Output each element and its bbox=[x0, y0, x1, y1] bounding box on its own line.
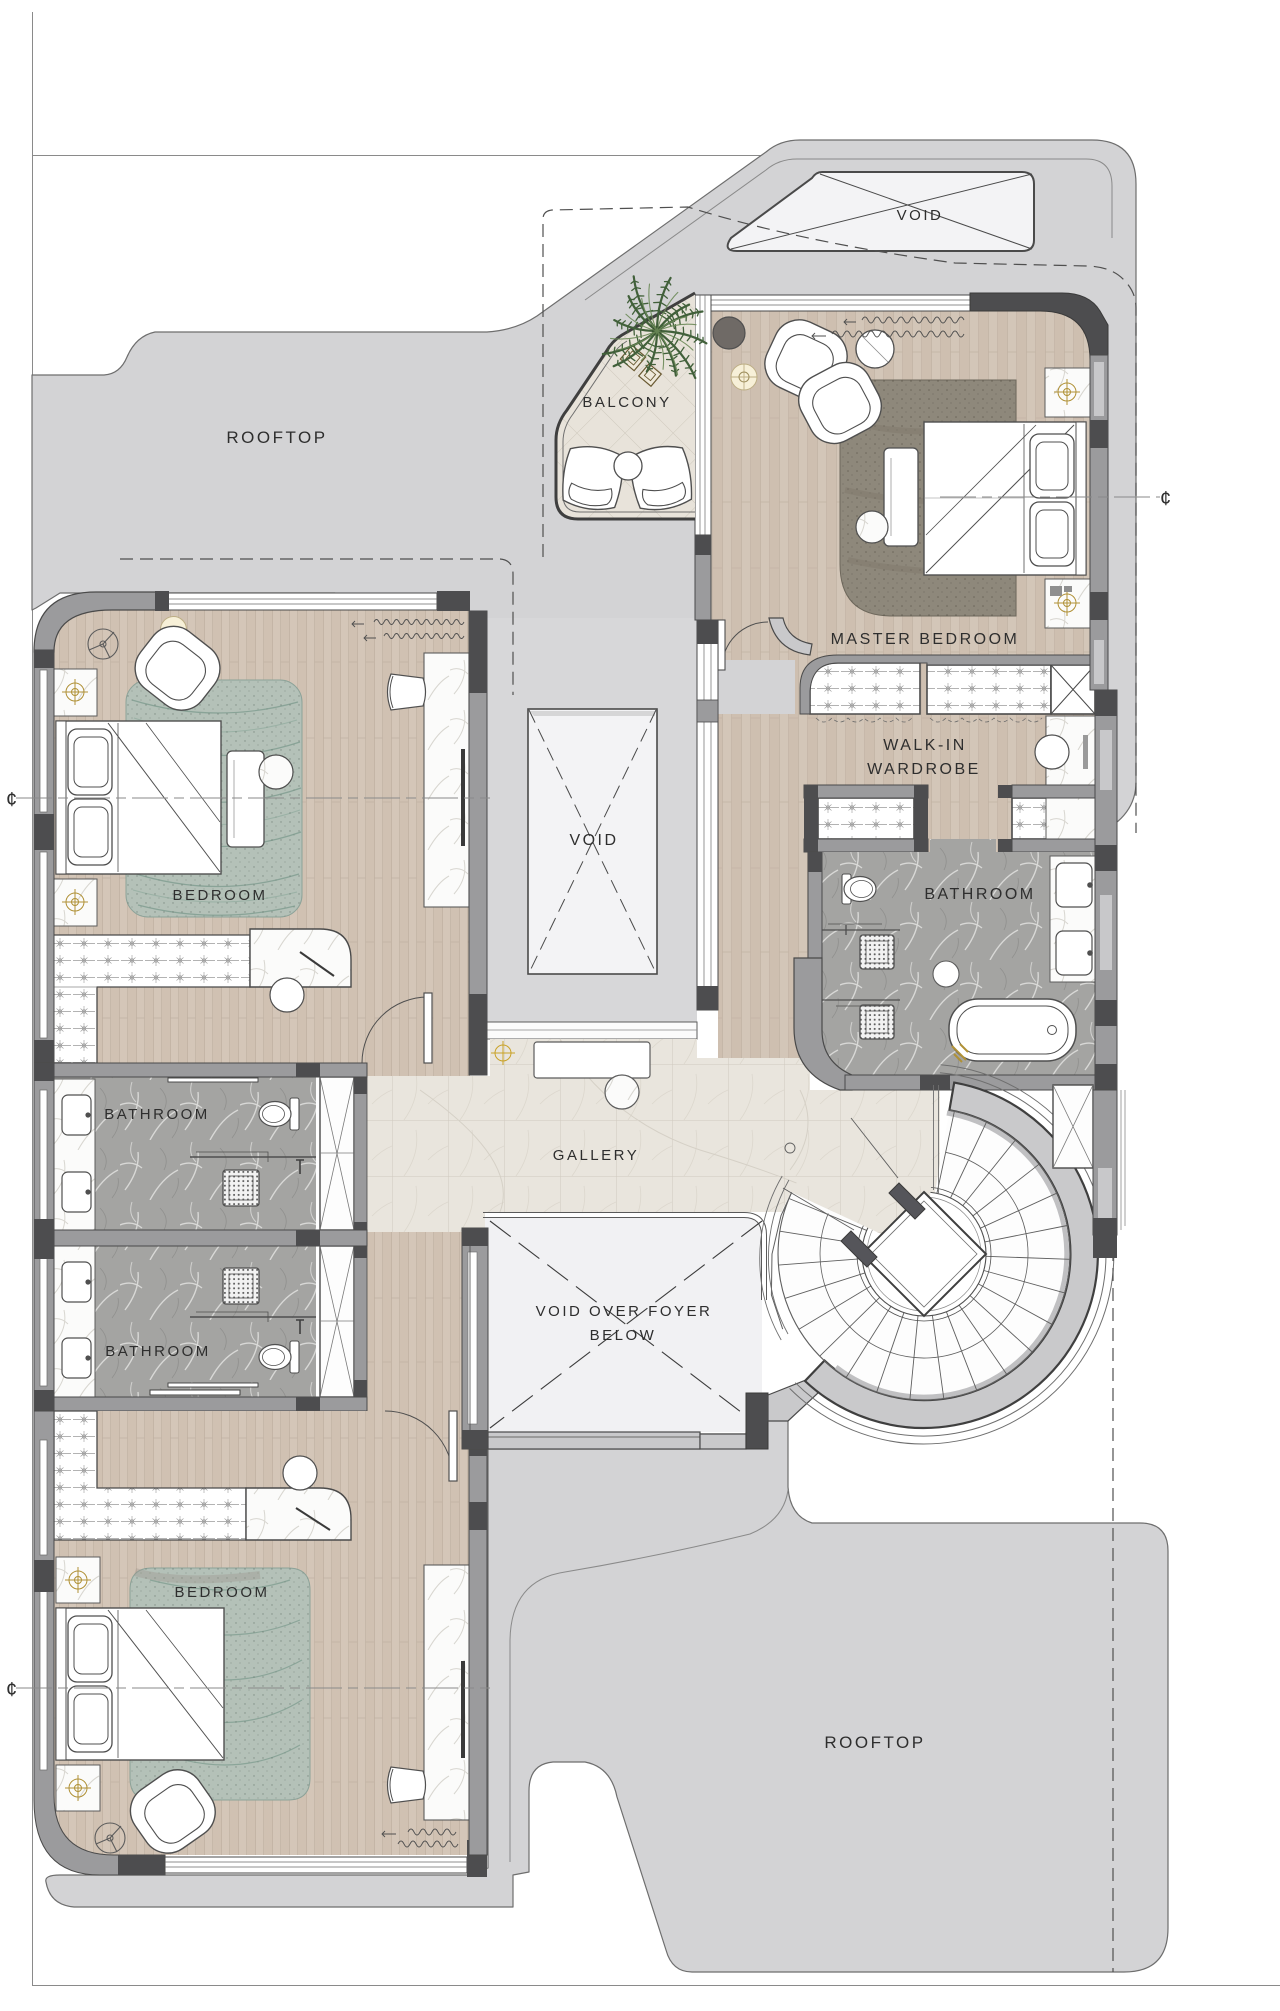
svg-text:BELOW: BELOW bbox=[590, 1327, 657, 1344]
svg-text:ROOFTOP: ROOFTOP bbox=[226, 428, 327, 447]
svg-text:BATHROOM: BATHROOM bbox=[104, 1106, 210, 1123]
svg-text:¢: ¢ bbox=[1160, 488, 1171, 510]
svg-text:WARDROBE: WARDROBE bbox=[867, 761, 981, 778]
svg-text:BALCONY: BALCONY bbox=[582, 394, 671, 411]
svg-text:¢: ¢ bbox=[6, 1679, 17, 1701]
svg-text:BEDROOM: BEDROOM bbox=[172, 887, 267, 904]
svg-text:VOID OVER FOYER: VOID OVER FOYER bbox=[536, 1303, 713, 1320]
svg-text:MASTER BEDROOM: MASTER BEDROOM bbox=[831, 631, 1020, 648]
svg-text:VOID: VOID bbox=[569, 832, 618, 849]
svg-text:BATHROOM: BATHROOM bbox=[924, 886, 1035, 903]
svg-text:GALLERY: GALLERY bbox=[553, 1147, 639, 1164]
svg-text:VOID: VOID bbox=[897, 207, 944, 224]
svg-text:WALK-IN: WALK-IN bbox=[883, 737, 967, 754]
svg-text:BATHROOM: BATHROOM bbox=[105, 1343, 211, 1360]
svg-text:BEDROOM: BEDROOM bbox=[174, 1584, 269, 1601]
svg-text:¢: ¢ bbox=[6, 789, 17, 811]
svg-text:ROOFTOP: ROOFTOP bbox=[824, 1733, 925, 1752]
